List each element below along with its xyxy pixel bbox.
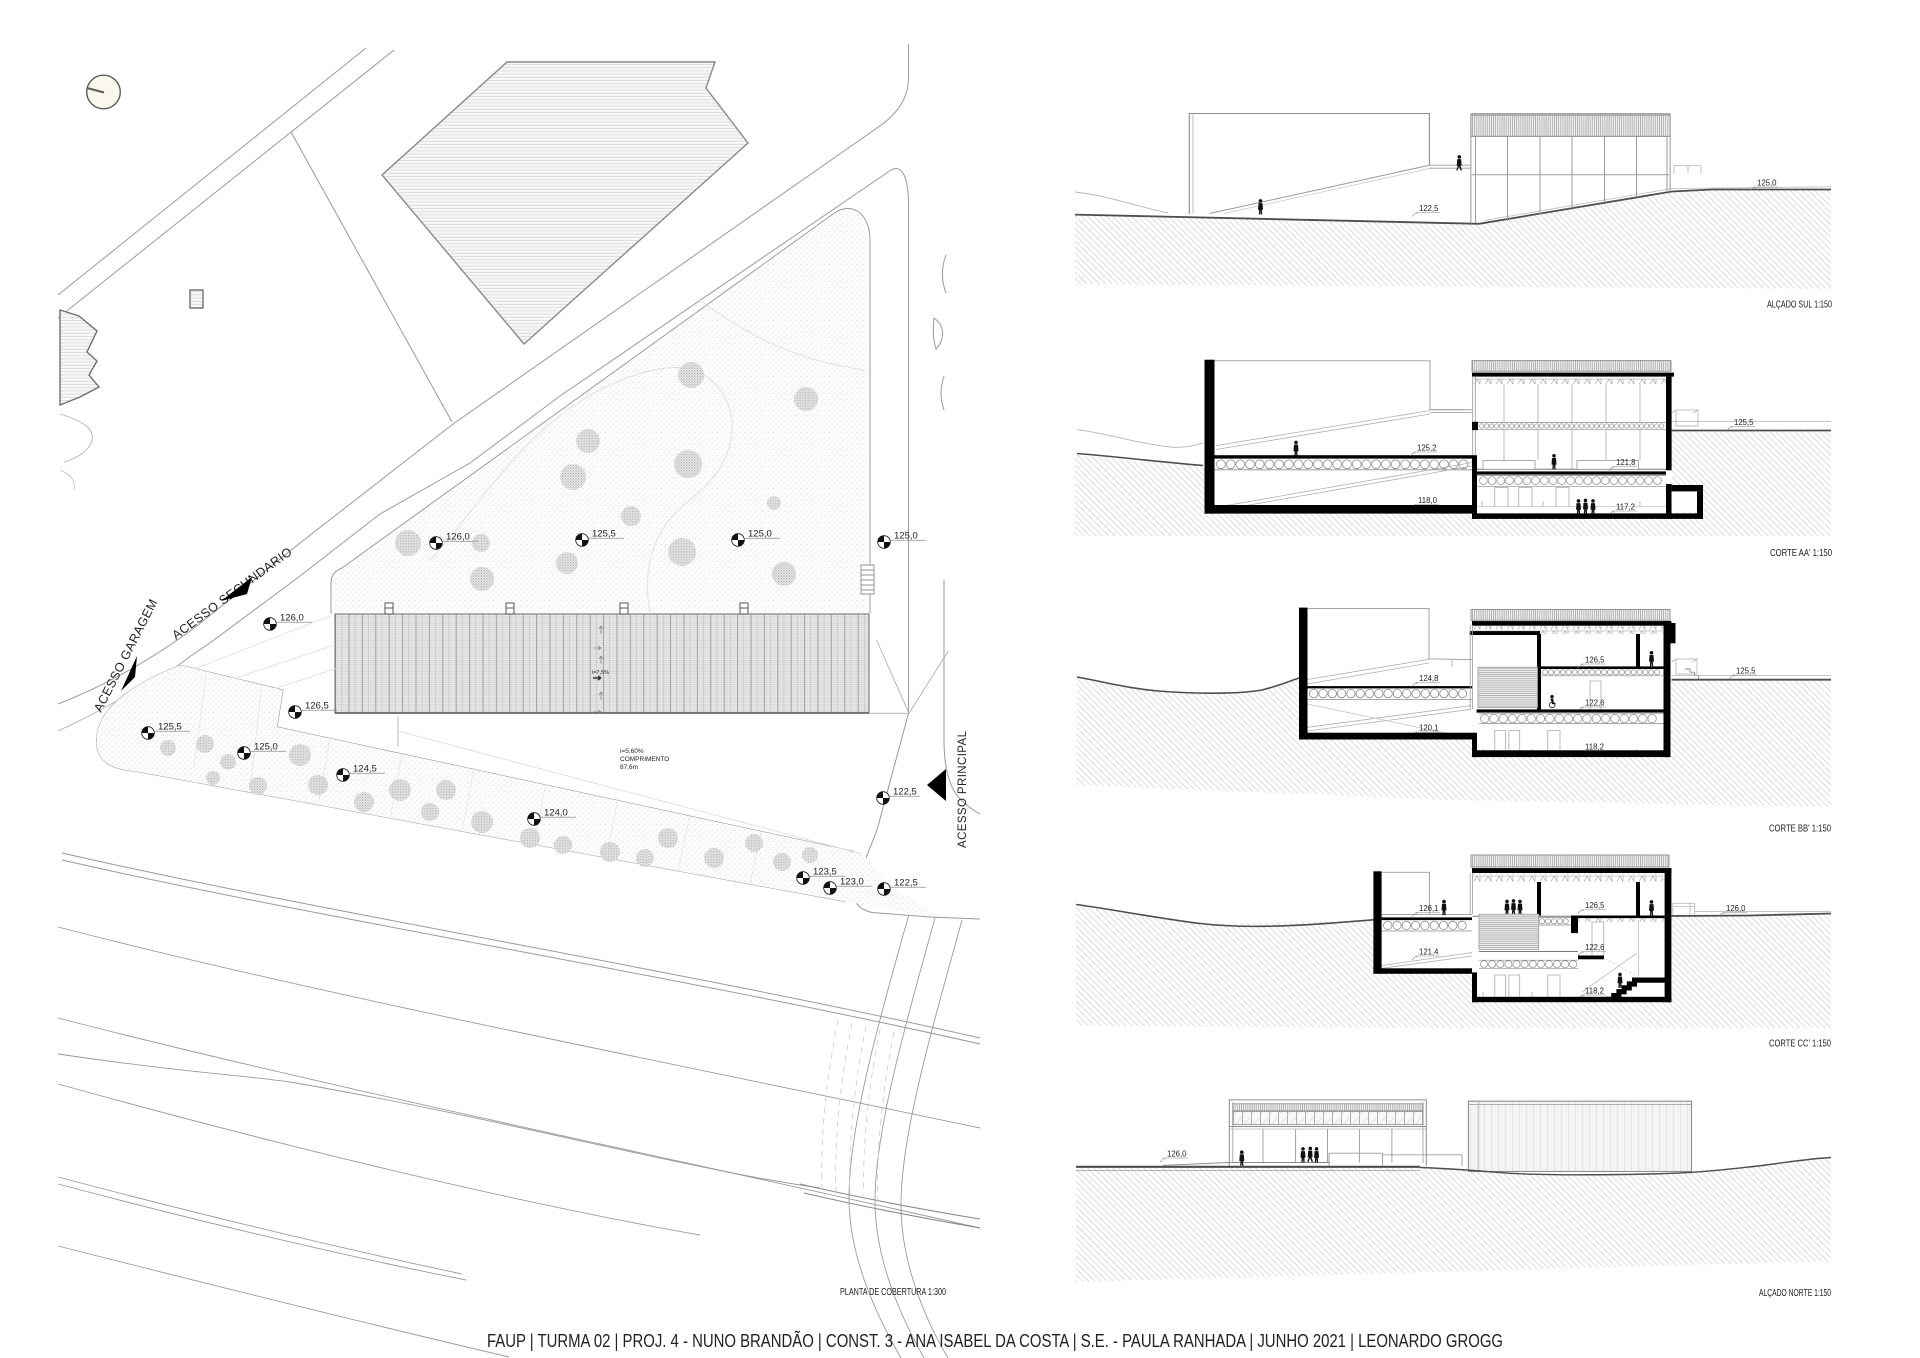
- svg-text:122,5: 122,5: [893, 786, 917, 797]
- svg-text:120,1: 120,1: [1419, 724, 1439, 733]
- svg-text:ALÇADO NORTE 1:150: ALÇADO NORTE 1:150: [1759, 1287, 1831, 1299]
- svg-text:126,5: 126,5: [1585, 656, 1605, 665]
- svg-text:125,0: 125,0: [1757, 179, 1777, 188]
- svg-text:87,6m: 87,6m: [620, 764, 638, 771]
- svg-text:126,0: 126,0: [1726, 904, 1746, 913]
- svg-text:126,5: 126,5: [1585, 901, 1605, 910]
- svg-text:122,6: 122,6: [1585, 699, 1605, 708]
- svg-text:i=5,60%: i=5,60%: [620, 748, 644, 755]
- svg-text:122,6: 122,6: [1585, 943, 1605, 952]
- svg-text:118,0: 118,0: [1418, 496, 1438, 505]
- svg-text:COMPRIMENTO: COMPRIMENTO: [620, 756, 669, 763]
- svg-text:i=7,5%: i=7,5%: [592, 670, 609, 676]
- svg-text:124,8: 124,8: [1419, 674, 1439, 683]
- svg-text:126,0: 126,0: [1167, 1150, 1187, 1159]
- svg-text:126,1: 126,1: [1419, 904, 1439, 913]
- svg-text:PLANTA DE COBERTURA 1:300: PLANTA DE COBERTURA 1:300: [840, 1287, 946, 1298]
- svg-text:CORTE BB' 1:150: CORTE BB' 1:150: [1769, 823, 1831, 835]
- svg-text:118,2: 118,2: [1585, 987, 1604, 996]
- svg-text:122,5: 122,5: [894, 877, 918, 888]
- svg-text:125,5: 125,5: [1734, 418, 1754, 427]
- svg-text:124,0: 124,0: [544, 807, 568, 818]
- svg-text:CORTE CC' 1:150: CORTE CC' 1:150: [1769, 1038, 1831, 1050]
- svg-text:124,5: 124,5: [353, 763, 377, 774]
- svg-text:126,0: 126,0: [446, 531, 470, 542]
- svg-text:125,0: 125,0: [894, 530, 918, 541]
- svg-text:125,0: 125,0: [748, 528, 772, 539]
- svg-text:126,5: 126,5: [305, 700, 329, 711]
- svg-text:121,4: 121,4: [1419, 948, 1439, 957]
- svg-text:FAUP | TURMA 02 | PROJ. 4 -: FAUP | TURMA 02 | PROJ. 4 - NUNO BRANDÃO…: [487, 1330, 1503, 1351]
- svg-text:126,0: 126,0: [280, 612, 304, 623]
- svg-text:ALÇADO SUL 1:150: ALÇADO SUL 1:150: [1767, 299, 1832, 311]
- svg-text:122,5: 122,5: [1419, 204, 1439, 213]
- svg-text:117,2: 117,2: [1616, 503, 1635, 512]
- svg-text:125,5: 125,5: [1736, 667, 1756, 676]
- svg-text:123,5: 123,5: [813, 866, 837, 877]
- svg-text:125,5: 125,5: [158, 721, 182, 732]
- svg-text:123,0: 123,0: [840, 876, 864, 887]
- svg-text:125,5: 125,5: [592, 528, 616, 539]
- svg-text:121,8: 121,8: [1616, 458, 1636, 467]
- svg-text:125,2: 125,2: [1417, 444, 1437, 453]
- svg-text:118,2: 118,2: [1585, 743, 1604, 752]
- svg-text:125,0: 125,0: [254, 741, 278, 752]
- svg-text:ACESSO PRINCIPAL: ACESSO PRINCIPAL: [957, 730, 969, 848]
- svg-text:CORTE AA' 1:150: CORTE AA' 1:150: [1770, 547, 1832, 559]
